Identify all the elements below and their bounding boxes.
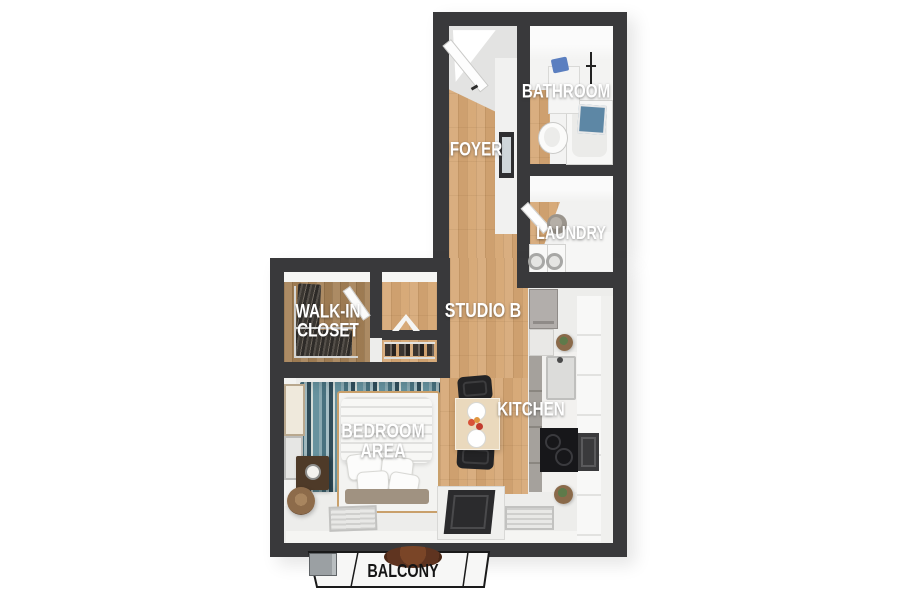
room-label-bedroom-area: BEDROOM AREA xyxy=(341,422,425,463)
kitchen-tall-cabinets xyxy=(577,296,602,541)
nightstand xyxy=(296,456,329,490)
flower-centerpiece xyxy=(468,417,484,430)
floor-vent xyxy=(329,505,378,532)
picture-frame xyxy=(284,384,305,436)
toilet xyxy=(538,122,568,154)
cooktop xyxy=(540,428,578,472)
wire-shelf xyxy=(294,356,358,358)
dining-table xyxy=(455,398,500,450)
room-label-studio-b: STUDIO B xyxy=(445,301,521,321)
shoe-rack xyxy=(385,344,434,356)
kitchen-floor xyxy=(601,296,613,543)
corridor-floor xyxy=(450,258,517,288)
oven xyxy=(578,433,599,471)
room-label-laundry: LAUNDRY xyxy=(536,224,606,242)
shoe-rack-rail xyxy=(384,357,435,359)
woven-basket xyxy=(287,487,315,515)
plant xyxy=(554,485,573,504)
room-label-balcony: BALCONY xyxy=(367,562,438,580)
room-label-foyer: FOYER xyxy=(450,140,502,159)
room-label-walk-in-closet: WALK-IN CLOSET xyxy=(295,303,360,342)
foot-blanket xyxy=(345,489,429,504)
floor-vent xyxy=(505,506,554,530)
table-lamp xyxy=(305,464,321,480)
wall-closet-bottom xyxy=(284,362,450,378)
shoe-rack-rail xyxy=(384,342,435,344)
plant xyxy=(556,334,573,351)
refrigerator-cabinet xyxy=(529,289,558,329)
balcony-sliding-door xyxy=(444,490,496,534)
ac-unit xyxy=(309,553,337,576)
room-label-bathroom: BATHROOM xyxy=(522,82,610,101)
kitchen-sink xyxy=(546,356,576,400)
floor-plan: FOYER BATHROOM LAUNDRY WALK-IN CLOSET ST… xyxy=(0,0,898,600)
plate xyxy=(467,429,486,448)
room-label-kitchen: KITCHEN xyxy=(497,400,565,419)
towel-bar xyxy=(590,52,592,84)
wall-face xyxy=(284,272,437,282)
wall-kitchen-top xyxy=(517,272,613,288)
bath-picture xyxy=(577,104,607,135)
kitchen-cabinet xyxy=(529,329,554,356)
wall-closet-right xyxy=(370,272,382,338)
